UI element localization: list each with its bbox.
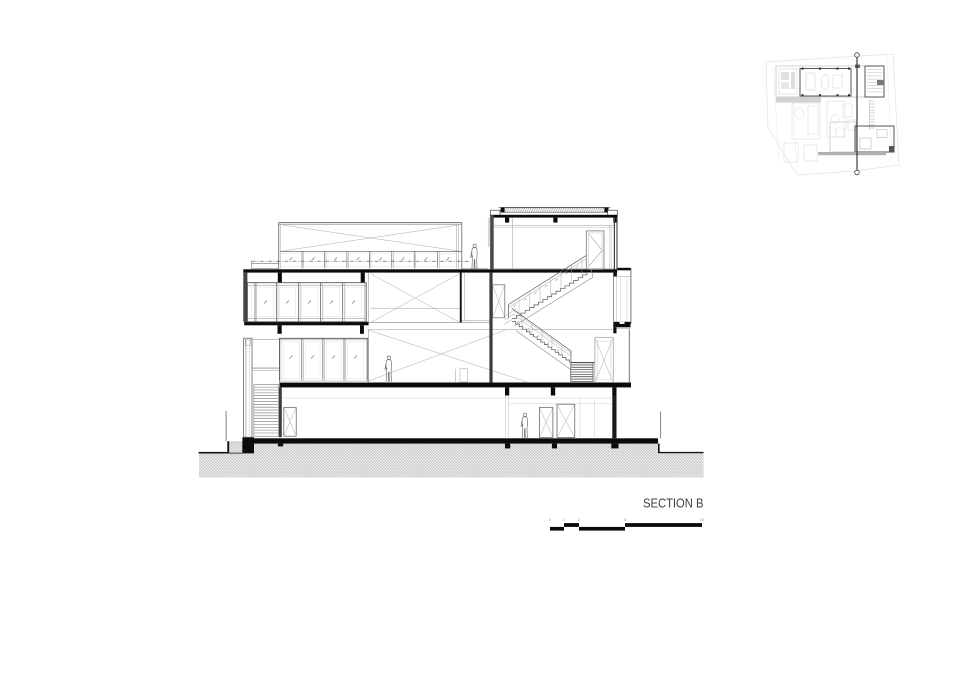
svg-text:2: 2 xyxy=(578,518,580,522)
svg-text:10: 10 xyxy=(700,518,704,522)
svg-text:0: 0 xyxy=(549,518,551,522)
svg-text:SECTION B: SECTION B xyxy=(643,495,704,510)
svg-text:5: 5 xyxy=(624,518,626,522)
svg-text:1: 1 xyxy=(563,518,565,522)
